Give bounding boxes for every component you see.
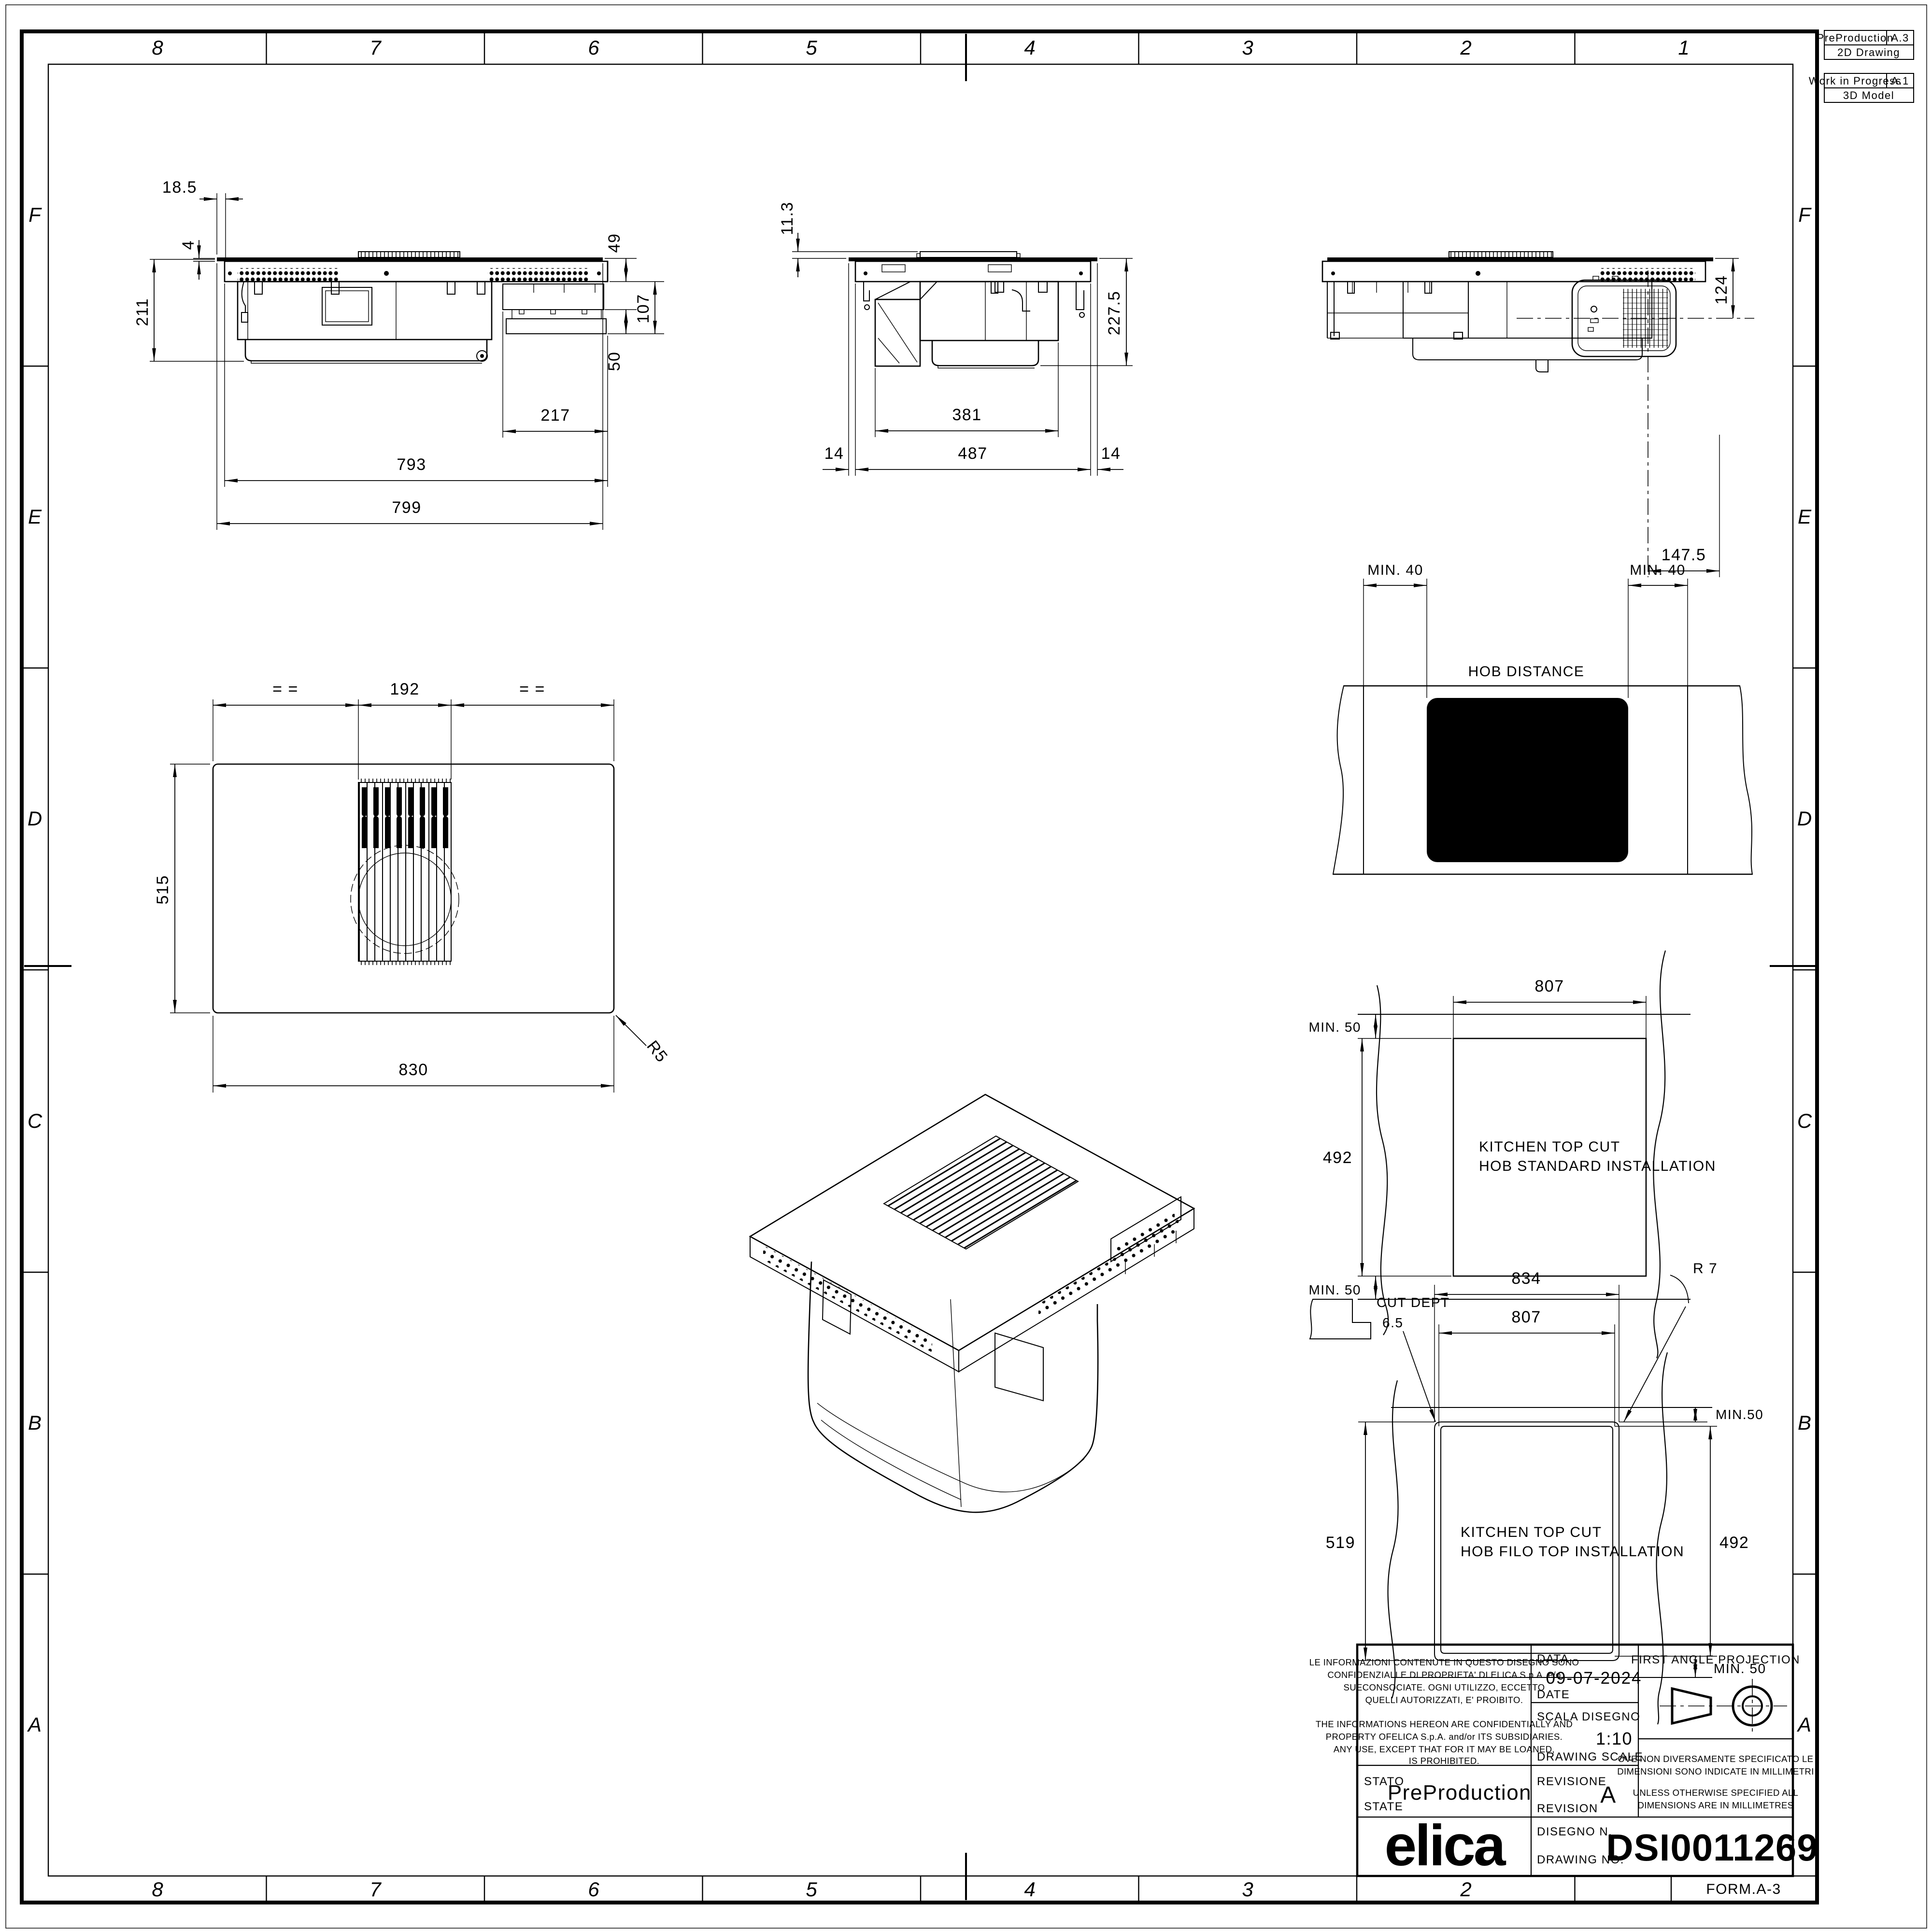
state-value: PreProduction <box>1388 1781 1532 1804</box>
dim-492-filo: 492 <box>1719 1534 1749 1552</box>
zone-col: 7 <box>369 1878 382 1901</box>
zone-col: 7 <box>369 36 382 59</box>
zone-col: 4 <box>1024 1878 1035 1901</box>
legal-it-line: QUELLI AUTORIZZATI, E' PROIBITO. <box>1365 1695 1523 1705</box>
hob-black <box>1427 698 1628 862</box>
dim-147-5: 147.5 <box>1662 546 1706 564</box>
filo-text-1: KITCHEN TOP CUT <box>1461 1524 1602 1540</box>
zone-row: C <box>1797 1109 1812 1132</box>
legal-en-line: ANY USE, EXCEPT THAT FOR IT MAY BE LOANE… <box>1334 1744 1555 1754</box>
dim-807: 807 <box>1534 977 1564 995</box>
status-3d-kind: 3D Model <box>1843 89 1894 101</box>
dim-min50-top: MIN. 50 <box>1308 1020 1361 1035</box>
zone-col: 6 <box>588 1878 599 1901</box>
zone-row: D <box>1797 807 1812 830</box>
zone-row: E <box>28 505 42 528</box>
status-3d-code: A.1 <box>1891 75 1909 87</box>
dim-min40-left: MIN. 40 <box>1367 562 1423 578</box>
dim-min40-right: MIN. 40 <box>1630 562 1686 578</box>
dim-381: 381 <box>952 406 981 424</box>
cad-canvas: 8 7 6 5 4 3 2 1 8 7 6 5 4 3 2 F E D C B … <box>0 0 1932 1932</box>
cut-dept-value: 6.5 <box>1382 1315 1403 1330</box>
dim-107: 107 <box>634 294 653 323</box>
date-value: 09-07-2024 <box>1546 1669 1642 1688</box>
note-en-line: UNLESS OTHERWISE SPECIFIED ALL <box>1633 1788 1799 1798</box>
zone-row: F <box>1798 203 1812 226</box>
note-it-line: DIMENSIONI SONO INDICATE IN MILLIMETRI <box>1617 1766 1814 1776</box>
zone-col: 8 <box>152 1878 163 1901</box>
zone-col: 2 <box>1460 36 1471 59</box>
disegno-label: DISEGNO N. <box>1537 1825 1612 1838</box>
legal-it-line: CONFIDENZIALI E DI PROPRIETA' DI ELICA S… <box>1327 1670 1561 1680</box>
zone-col: 8 <box>152 36 163 59</box>
dim-834: 834 <box>1511 1269 1541 1288</box>
elica-logo: elica <box>1385 1813 1506 1878</box>
dim-min50-top-filo: MIN.50 <box>1716 1407 1763 1422</box>
dim-eq-left: = = <box>272 680 298 698</box>
zone-row: B <box>28 1411 42 1434</box>
dim-807-filo: 807 <box>1511 1308 1541 1326</box>
dim-11-3: 11.3 <box>778 201 796 235</box>
scala-label: SCALA DISEGNO <box>1537 1710 1640 1723</box>
scale-value: 1:10 <box>1596 1729 1633 1748</box>
dim-793: 793 <box>397 455 426 474</box>
dim-min50-bottom: MIN. 50 <box>1308 1282 1361 1297</box>
dim-211: 211 <box>133 298 152 327</box>
zone-col: 2 <box>1460 1878 1471 1901</box>
status-2d-code: A.3 <box>1891 32 1909 44</box>
zone-col: 3 <box>1242 1878 1253 1901</box>
zone-col: 5 <box>806 1878 817 1901</box>
dim-192: 192 <box>390 680 419 698</box>
dim-492: 492 <box>1323 1149 1352 1167</box>
dim-4: 4 <box>179 240 198 250</box>
date-label: DATE <box>1537 1688 1570 1701</box>
dim-eq-right: = = <box>519 680 545 698</box>
dim-217: 217 <box>540 406 570 425</box>
zone-row: B <box>1798 1411 1811 1434</box>
cut-text-2: HOB STANDARD INSTALLATION <box>1479 1158 1716 1174</box>
dim-515: 515 <box>154 875 172 904</box>
cut-text-1: KITCHEN TOP CUT <box>1479 1139 1620 1155</box>
legal-it-line: SUECONSOCIATE. OGNI UTILIZZO, ECCETTO <box>1343 1682 1545 1692</box>
zone-col: 1 <box>1678 36 1689 59</box>
legal-en-line: IS PROHIBITED. <box>1409 1756 1479 1766</box>
dim-799: 799 <box>392 498 421 517</box>
vent-perforations-right <box>488 268 588 281</box>
drawing-no-value: DSI0011269 <box>1606 1826 1818 1869</box>
dim-519: 519 <box>1326 1534 1355 1552</box>
note-en-line: DIMENSIONS ARE IN MILLIMETRES <box>1637 1800 1793 1810</box>
revision-label: REVISION <box>1537 1802 1598 1815</box>
dim-18-5: 18.5 <box>162 178 197 197</box>
data-label: DATA <box>1537 1652 1569 1665</box>
vent-perforations <box>1599 268 1695 281</box>
status-2d-state: PreProduction <box>1817 32 1894 44</box>
zone-row: D <box>28 807 42 830</box>
zone-col: 3 <box>1242 36 1253 59</box>
drawing-sheet: 8 7 6 5 4 3 2 1 8 7 6 5 4 3 2 F E D C B … <box>0 0 1932 1932</box>
zone-col: 6 <box>588 36 599 59</box>
revision-value: A <box>1600 1782 1617 1808</box>
dim-14-right: 14 <box>1101 444 1121 463</box>
legal-en-line: PROPERTY OFELICA S.p.A. and/or ITS SUBSI… <box>1326 1732 1563 1742</box>
extraction-grille <box>351 779 459 965</box>
dim-124: 124 <box>1712 275 1731 304</box>
vent-perforations-left <box>238 268 338 281</box>
zone-row: E <box>1798 505 1812 528</box>
first-angle-label: FIRST ANGLE PROJECTION <box>1631 1653 1800 1666</box>
dim-227-5: 227.5 <box>1105 291 1123 336</box>
hob-distance-label: HOB DISTANCE <box>1468 664 1585 680</box>
dim-830: 830 <box>398 1061 428 1079</box>
zone-row: F <box>28 203 42 226</box>
filo-text-2: HOB FILO TOP INSTALLATION <box>1461 1544 1684 1560</box>
zone-row: C <box>28 1109 43 1132</box>
zone-col: 5 <box>806 36 817 59</box>
zone-row: A <box>1796 1713 1811 1736</box>
revisione-label: REVISIONE <box>1537 1775 1606 1788</box>
dim-14-left: 14 <box>824 444 844 463</box>
zone-col: 4 <box>1024 36 1035 59</box>
zone-row: A <box>27 1713 42 1736</box>
cut-dept-label: CUT DEPT <box>1377 1295 1450 1310</box>
form-label: FORM.A-3 <box>1706 1881 1781 1897</box>
dim-r7: R 7 <box>1693 1261 1718 1277</box>
note-it-line: OVE NON DIVERSAMENTE SPECIFICATO LE <box>1618 1754 1814 1764</box>
dim-49: 49 <box>605 233 624 253</box>
dim-487: 487 <box>958 444 987 463</box>
status-3d-state: Work in Progress <box>1809 75 1902 87</box>
status-2d-kind: 2D Drawing <box>1837 46 1900 58</box>
legal-en-line: THE INFORMATIONS HEREON ARE CONFIDENTIAL… <box>1316 1719 1573 1729</box>
